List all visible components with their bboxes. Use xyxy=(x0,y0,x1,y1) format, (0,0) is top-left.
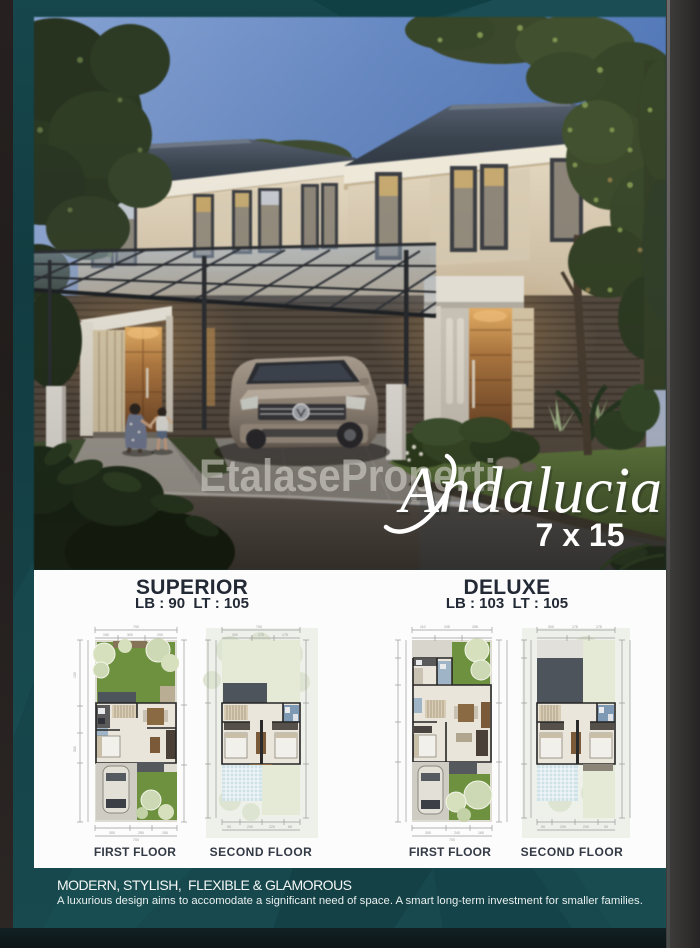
svg-text:200: 200 xyxy=(157,633,163,637)
svg-text:200: 200 xyxy=(583,825,589,829)
svg-text:110: 110 xyxy=(420,625,426,629)
svg-text:7 x 15: 7 x 15 xyxy=(536,517,625,553)
svg-text:150: 150 xyxy=(103,633,109,637)
svg-text:300: 300 xyxy=(73,746,77,752)
svg-text:255: 255 xyxy=(472,625,478,629)
svg-text:200: 200 xyxy=(560,825,566,829)
svg-text:700: 700 xyxy=(133,625,139,629)
svg-text:90: 90 xyxy=(541,825,545,829)
svg-text:300: 300 xyxy=(232,633,238,637)
svg-text:90: 90 xyxy=(604,825,608,829)
svg-text:300: 300 xyxy=(548,625,554,629)
svg-text:205: 205 xyxy=(444,625,450,629)
svg-text:700: 700 xyxy=(449,838,455,842)
svg-text:300: 300 xyxy=(127,633,133,637)
svg-text:220: 220 xyxy=(269,825,275,829)
svg-text:700: 700 xyxy=(133,838,139,842)
svg-text:175: 175 xyxy=(596,625,602,629)
svg-text:65: 65 xyxy=(288,825,292,829)
svg-text:200: 200 xyxy=(247,825,253,829)
svg-text:250: 250 xyxy=(138,831,144,835)
svg-text:300: 300 xyxy=(425,831,431,835)
svg-text:160: 160 xyxy=(478,831,484,835)
svg-text:240: 240 xyxy=(454,831,460,835)
svg-text:175: 175 xyxy=(258,633,264,637)
svg-text:150: 150 xyxy=(73,672,77,678)
svg-text:700: 700 xyxy=(256,625,262,629)
svg-text:90: 90 xyxy=(227,825,231,829)
svg-text:175: 175 xyxy=(572,625,578,629)
svg-text:175: 175 xyxy=(282,633,288,637)
svg-text:300: 300 xyxy=(109,831,115,835)
svg-text:150: 150 xyxy=(162,831,168,835)
